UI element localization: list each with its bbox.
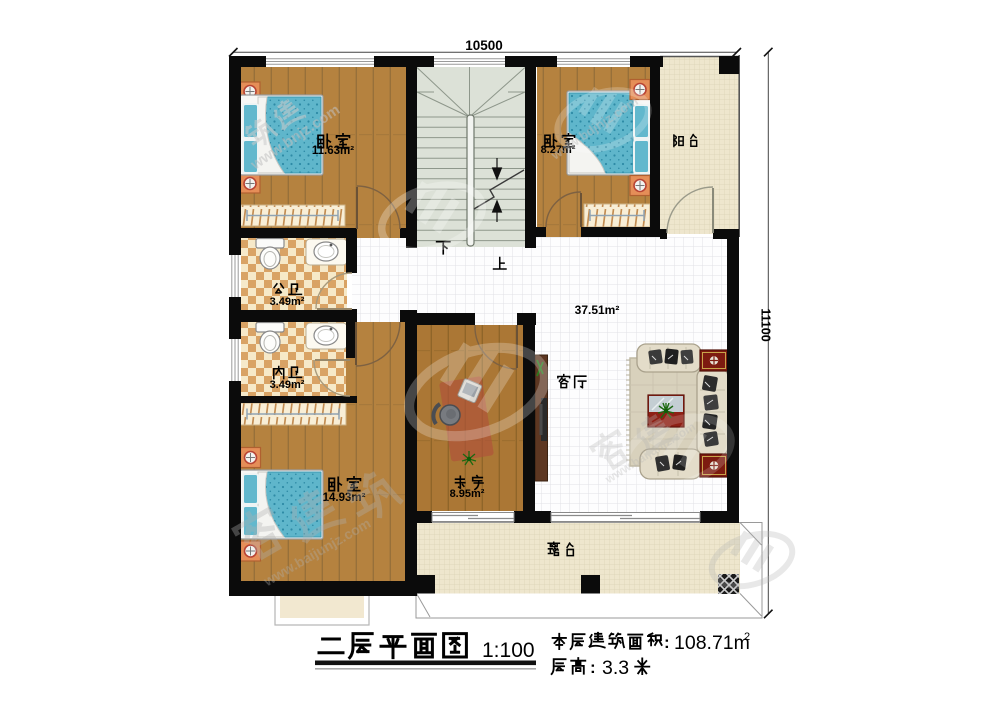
svg-text:11100: 11100 [759, 308, 773, 341]
svg-text:10500: 10500 [465, 38, 503, 53]
svg-text:11.63m²: 11.63m² [312, 145, 354, 157]
svg-text::: : [664, 633, 670, 652]
svg-text:1:100: 1:100 [482, 639, 535, 662]
svg-text:3.3: 3.3 [602, 657, 629, 679]
svg-text:3.49m²: 3.49m² [270, 296, 305, 308]
svg-text:8.95m²: 8.95m² [450, 488, 485, 500]
svg-text::: : [590, 658, 596, 677]
svg-text:3.49m²: 3.49m² [270, 379, 305, 391]
svg-text:2: 2 [744, 631, 750, 643]
svg-text:108.71m: 108.71m [674, 632, 750, 654]
svg-text:37.51m²: 37.51m² [575, 303, 620, 317]
